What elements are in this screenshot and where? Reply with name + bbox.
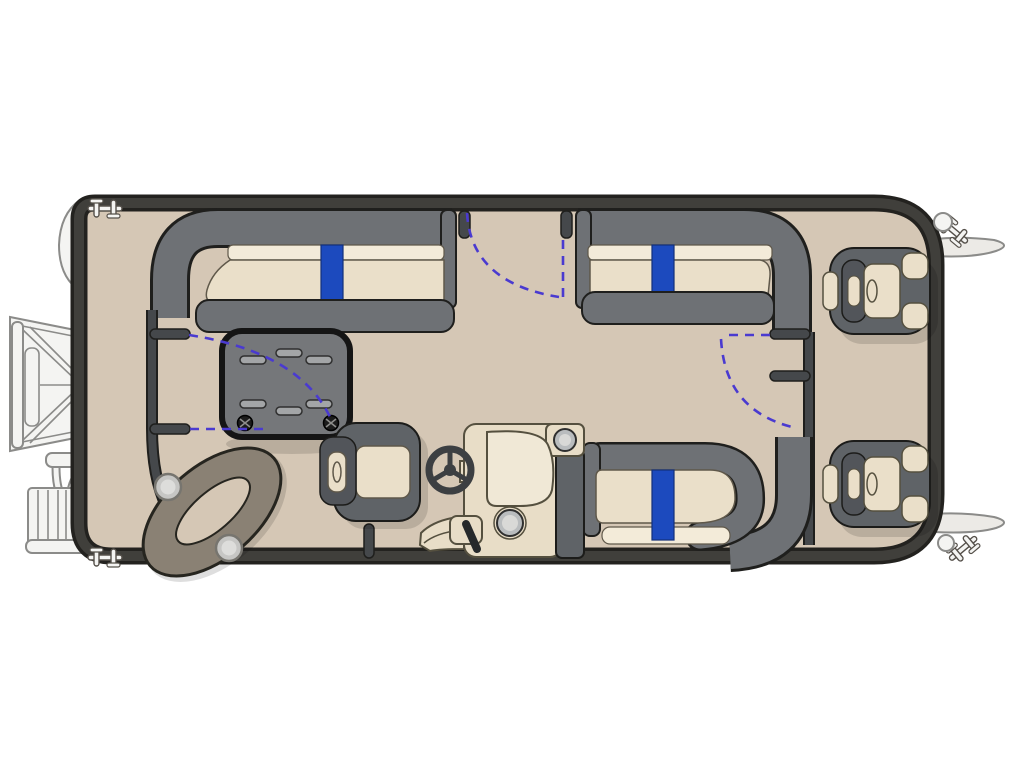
corner-light-top — [934, 213, 952, 231]
console-gauge-inner — [502, 515, 518, 531]
nose-cone-fin-bottom — [934, 513, 1004, 532]
bow-fishing-chair-2 — [823, 441, 938, 537]
stern-boarding-ramp — [10, 317, 80, 451]
bow-gate-post-mid — [770, 371, 810, 381]
pontoon-floorplan — [0, 0, 1024, 768]
lounge2-blue-stripe — [652, 245, 674, 295]
bow-gate-post-top — [770, 329, 810, 339]
table-slot-4 — [240, 400, 266, 408]
table-slot-3 — [306, 356, 332, 364]
lounge1-blue-stripe — [321, 245, 343, 303]
table-slot-6 — [306, 400, 332, 408]
port-gate-post-right — [561, 211, 572, 238]
lounge2-front-edge — [582, 292, 774, 324]
stern-gate-post-top — [150, 329, 190, 339]
ramp-handle-bar — [12, 322, 23, 448]
lounge2-back-cushion — [588, 245, 772, 260]
lounge1-front-edge — [196, 300, 454, 332]
cupholder-1-inner — [161, 480, 176, 495]
lounge3-blue-stripe — [652, 470, 674, 540]
console-dash-panel — [487, 431, 553, 506]
helm-chair-cushion — [356, 446, 410, 498]
table-slot-1 — [240, 356, 266, 364]
lounge2-seat-cushion — [590, 260, 770, 296]
cupholder-2-inner — [222, 541, 237, 556]
table-slot-2 — [276, 349, 302, 357]
stern-gate-post-bottom — [150, 424, 190, 434]
port-forward-lounge — [576, 210, 792, 332]
console-speaker-inner — [559, 434, 571, 446]
floorplan-canvas — [0, 0, 1024, 768]
helm-fence-post — [364, 524, 374, 558]
console-side-panel — [556, 450, 584, 558]
bow-fishing-chair-1 — [823, 248, 938, 344]
table-slot-5 — [276, 407, 302, 415]
helm-chair-headrest-pad — [328, 452, 346, 492]
wheel-hub — [444, 464, 456, 476]
corner-light-bottom — [938, 535, 954, 551]
